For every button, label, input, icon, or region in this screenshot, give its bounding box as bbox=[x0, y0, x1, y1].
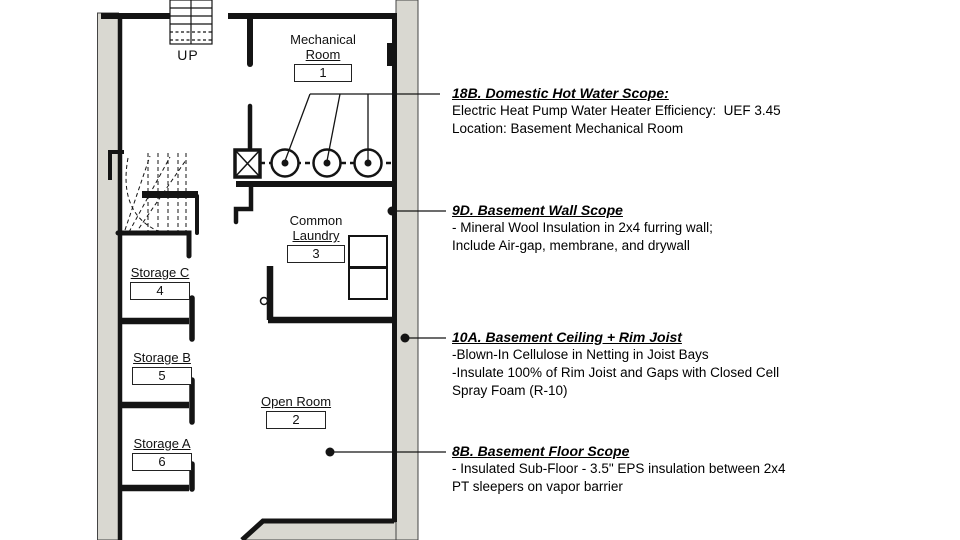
annotation-heading: 10A. Basement Ceiling + Rim Joist bbox=[452, 328, 842, 346]
water-heater-icon bbox=[272, 150, 299, 177]
bottom-exterior-wall bbox=[244, 522, 396, 540]
annotation-10a-ceiling-rim-joist: 10A. Basement Ceiling + Rim Joist -Blown… bbox=[452, 328, 842, 400]
room-label-open-room: Open Room 2 bbox=[231, 394, 361, 429]
room-number-box: 3 bbox=[287, 245, 345, 263]
leader-dot-8b bbox=[326, 448, 335, 457]
room-label-laundry: Common Laundry 3 bbox=[251, 213, 381, 263]
annotation-line: Location: Basement Mechanical Room bbox=[452, 120, 842, 138]
straight-stair-icon bbox=[170, 0, 212, 44]
room-name: Storage B bbox=[97, 350, 227, 365]
annotation-heading: 8B. Basement Floor Scope bbox=[452, 442, 842, 460]
room-label-storage-c: Storage C 4 bbox=[95, 265, 225, 300]
room-number-box: 2 bbox=[266, 411, 326, 429]
winder-stair-icon bbox=[125, 153, 198, 234]
room-label-storage-b: Storage B 5 bbox=[97, 350, 227, 385]
annotation-heading: 9D. Basement Wall Scope bbox=[452, 201, 842, 219]
room-number-box: 1 bbox=[294, 64, 352, 82]
stair-storage-c-wall bbox=[118, 233, 189, 256]
annotation-line: Electric Heat Pump Water Heater Efficien… bbox=[452, 102, 842, 120]
stair-rail-bar bbox=[142, 191, 198, 198]
water-heater-icon bbox=[314, 150, 341, 177]
room-label-mechanical: Mechanical Room 1 bbox=[258, 32, 388, 82]
annotation-line: -Blown-In Cellulose in Netting in Joist … bbox=[452, 346, 842, 364]
room-name: Laundry bbox=[251, 228, 381, 243]
room-name: Storage A bbox=[97, 436, 227, 451]
annotation-line: - Insulated Sub-Floor - 3.5" EPS insulat… bbox=[452, 460, 842, 478]
annotation-8b-floor-scope: 8B. Basement Floor Scope - Insulated Sub… bbox=[452, 442, 842, 496]
room-number-box: 4 bbox=[130, 282, 190, 300]
mechanical-equipment bbox=[235, 150, 394, 178]
stair-up-label: UP bbox=[168, 47, 208, 63]
leader-dot-10a bbox=[401, 334, 410, 343]
room-name: Mechanical bbox=[258, 32, 388, 47]
room-name: Common bbox=[251, 213, 381, 228]
annotation-line: Include Air-gap, membrane, and drywall bbox=[452, 237, 842, 255]
annotation-line: PT sleepers on vapor barrier bbox=[452, 478, 842, 496]
right-exterior-wall bbox=[396, 0, 418, 540]
annotation-line: - Mineral Wool Insulation in 2x4 furring… bbox=[452, 219, 842, 237]
laundry-door-jamb bbox=[236, 187, 251, 222]
room-number-box: 6 bbox=[132, 453, 192, 471]
door-pivot-icon bbox=[261, 298, 268, 305]
room-name: Room bbox=[258, 47, 388, 62]
annotation-9d-wall-scope: 9D. Basement Wall Scope - Mineral Wool I… bbox=[452, 201, 842, 255]
dryer-icon bbox=[349, 268, 387, 299]
room-number-box: 5 bbox=[132, 367, 192, 385]
room-name: Storage C bbox=[95, 265, 225, 280]
room-label-storage-a: Storage A 6 bbox=[97, 436, 227, 471]
annotation-heading: 18B. Domestic Hot Water Scope: bbox=[452, 84, 842, 102]
leader-dot-9d bbox=[388, 207, 397, 216]
basement-plan-page: { "plan": { "stair_label": "UP", "rooms"… bbox=[0, 0, 960, 540]
annotation-18b-hot-water-scope: 18B. Domestic Hot Water Scope: Electric … bbox=[452, 84, 842, 138]
annotation-line: Spray Foam (R-10) bbox=[452, 382, 842, 400]
annotation-line: -Insulate 100% of Rim Joist and Gaps wit… bbox=[452, 364, 842, 382]
room-name: Open Room bbox=[231, 394, 361, 409]
